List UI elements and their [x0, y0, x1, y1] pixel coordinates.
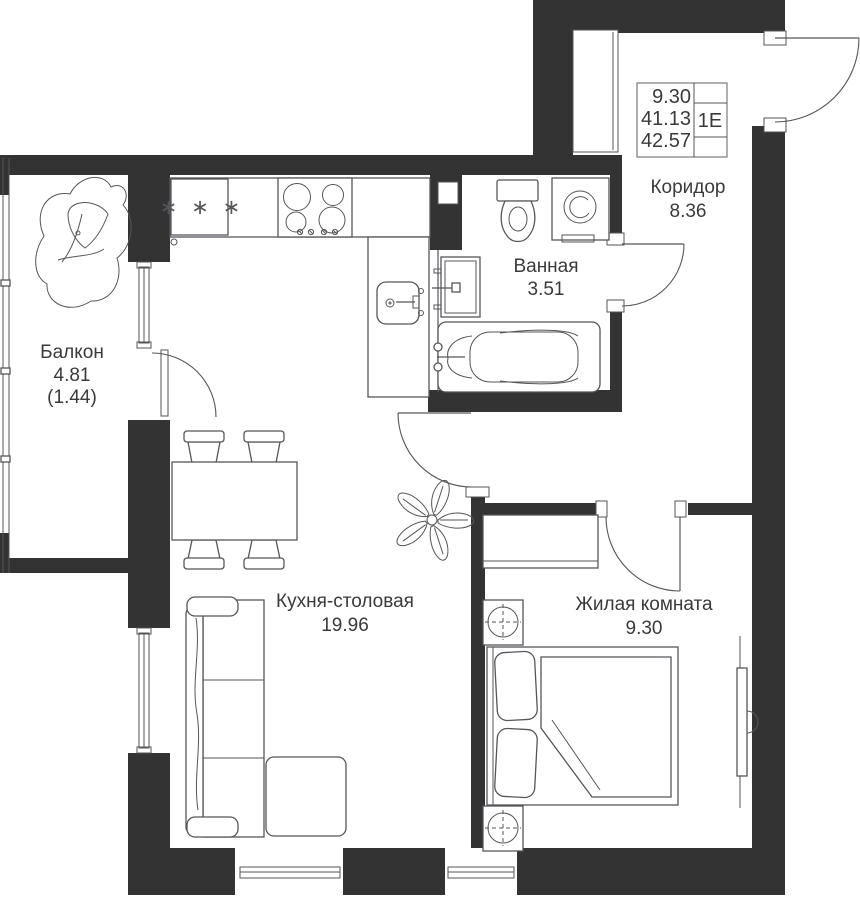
dining-table — [172, 462, 297, 540]
chair — [244, 431, 284, 463]
chair — [244, 540, 284, 569]
bed — [487, 647, 678, 805]
total-area-value: 42.57 — [641, 130, 691, 152]
pillow — [494, 651, 538, 721]
living-room-door — [596, 501, 686, 591]
chair — [184, 540, 224, 569]
balcony-area-coefficient: (1.44) — [47, 387, 97, 408]
area-without-balcony-value: 41.13 — [641, 108, 691, 130]
utility-shaft — [573, 30, 618, 152]
floor-plan-page: 9.30 41.13 42.57 1Е ∗ ∗ ∗ — [0, 0, 860, 900]
window-balcony-wall — [137, 262, 151, 348]
nightstand — [483, 806, 523, 851]
corridor-area: 8.36 — [670, 201, 707, 222]
bathroom-label: Ванная — [513, 256, 578, 277]
bathroom-area: 3.51 — [528, 279, 565, 300]
kitchen-dining-area: 19.96 — [321, 615, 369, 636]
washing-machine — [552, 178, 609, 242]
living-room-label: Жилая комната — [575, 594, 713, 615]
corridor-label: Коридор — [650, 177, 725, 198]
unit-area-table: 9.30 41.13 42.57 1Е — [637, 83, 727, 157]
balcony-glazing — [1, 158, 10, 573]
dining-set — [172, 431, 297, 569]
kitchen-dining-label: Кухня-столовая — [276, 591, 414, 612]
balcony-armchair — [36, 177, 131, 307]
balcony-label: Балкон — [40, 342, 104, 363]
bathroom-door — [607, 233, 684, 312]
kitchen-door — [398, 413, 489, 497]
floor-plan: 9.30 41.13 42.57 1Е ∗ ∗ ∗ — [0, 0, 860, 900]
plant-icon — [393, 478, 473, 562]
toilet — [497, 180, 538, 242]
window-kitchen-left — [137, 628, 151, 753]
entrance-door — [764, 31, 859, 132]
bathroom-wall-niche — [438, 182, 458, 204]
bathroom-sink — [432, 257, 480, 317]
balcony-area: 4.81 — [54, 365, 91, 386]
wardrobe — [483, 515, 598, 568]
living-room-area: 9.30 — [626, 618, 663, 639]
chair — [184, 431, 224, 463]
pillow — [494, 728, 538, 798]
stove — [278, 178, 352, 237]
kitchen-sink — [377, 282, 424, 324]
living-area-value: 9.30 — [652, 86, 691, 108]
fridge-marks: ∗ ∗ ∗ — [160, 196, 244, 219]
nightstand — [483, 600, 523, 645]
bathtub — [434, 322, 600, 392]
unit-type-label: 1Е — [698, 110, 722, 132]
